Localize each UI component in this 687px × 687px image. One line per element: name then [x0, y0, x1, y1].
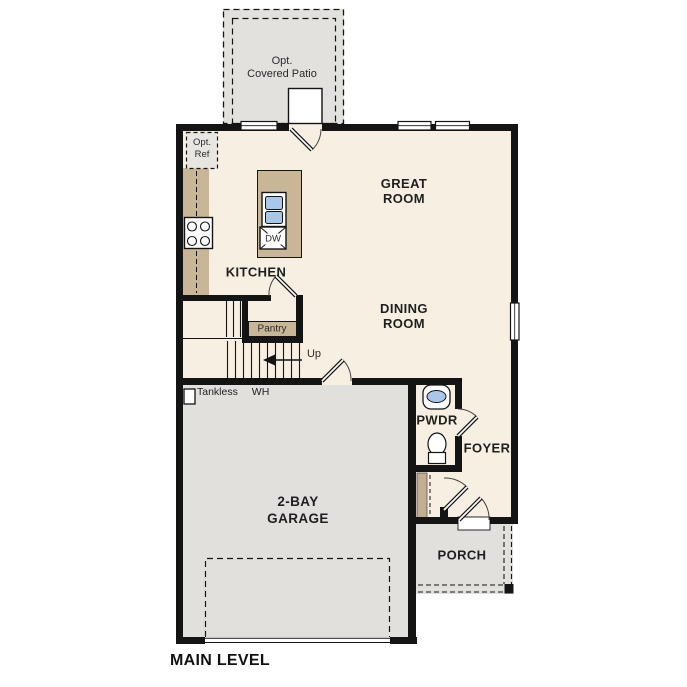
kitchen-label: KITCHEN: [226, 265, 287, 280]
garage-label: 2-BAY GARAGE: [267, 493, 329, 527]
window: [511, 303, 520, 340]
tankless-wh-label-line1: Tankless: [197, 386, 238, 398]
opt-ref-label-line2: Ref: [193, 149, 211, 161]
stairs-up-label: Up: [307, 348, 321, 360]
floor-plan: Opt. Covered Patio Opt. Ref GREAT ROOM K…: [0, 0, 687, 687]
great-room-label-line2: ROOM: [381, 191, 428, 206]
great-room-label: GREAT ROOM: [381, 176, 428, 206]
great-room-label-line1: GREAT: [381, 176, 428, 191]
tankless-wh-label: Tankless WH: [197, 386, 269, 399]
cooktop: [185, 218, 213, 249]
garage-label-line1: 2-BAY: [267, 493, 329, 510]
porch-label: PORCH: [438, 548, 487, 563]
floor-plan-drawing: [0, 0, 687, 687]
patio-label-line1: Opt.: [247, 55, 317, 68]
porch-post: [505, 584, 514, 594]
opt-ref-label-line1: Opt.: [193, 137, 211, 149]
dining-room-label-line1: DINING: [380, 301, 428, 316]
pwdr-label: PWDR: [416, 413, 457, 428]
tankless-wh-label-line2: WH: [252, 386, 270, 398]
dishwasher-label: DW: [263, 234, 283, 245]
patio-label-line2: Covered Patio: [247, 68, 317, 81]
window: [398, 122, 431, 131]
window: [436, 122, 470, 131]
garage-label-line2: GARAGE: [267, 510, 329, 527]
plan-title: MAIN LEVEL: [170, 652, 270, 670]
opt-ref-label: Opt. Ref: [193, 137, 211, 161]
tankless-water-heater: [184, 389, 195, 404]
toilet: [428, 433, 446, 464]
pantry-label: Pantry: [258, 324, 287, 335]
garage-door-opening: [205, 637, 390, 644]
patio-label: Opt. Covered Patio: [247, 55, 317, 81]
window: [241, 122, 277, 131]
pwdr-sink: [423, 385, 450, 409]
dining-room-label: DINING ROOM: [380, 301, 428, 331]
dining-room-label-line2: ROOM: [380, 316, 428, 331]
foyer-label: FOYER: [464, 441, 511, 456]
island-sink: [262, 193, 286, 227]
